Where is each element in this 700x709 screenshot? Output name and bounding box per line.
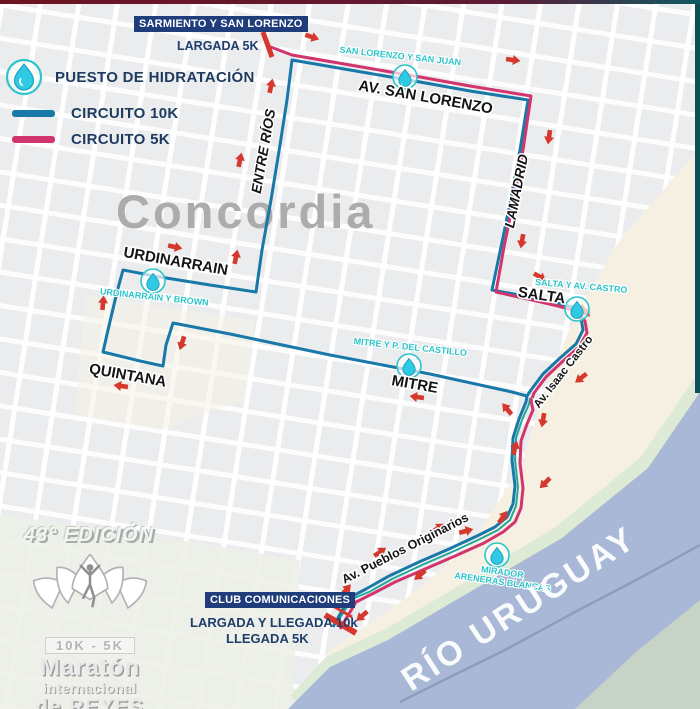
finish-line2: LLEGADA 5K bbox=[226, 631, 309, 646]
hydration-icon-urdinarrain bbox=[141, 269, 165, 293]
event-logo: 10K - 5K Maratón internacional de REYES … bbox=[6, 554, 174, 709]
legend-5k-label: CIRCUITO 5K bbox=[71, 131, 170, 148]
logo-distances: 10K - 5K bbox=[45, 637, 135, 654]
hydration-legend-icon bbox=[5, 58, 43, 96]
legend-hydration-label: PUESTO DE HIDRATACIÓN bbox=[55, 69, 255, 86]
street-label-lamadrid: LAMADRID bbox=[501, 153, 531, 229]
logo-title-2: internacional bbox=[6, 681, 174, 695]
hydration-label-san-lorenzo: SAN LORENZO Y SAN JUAN bbox=[339, 45, 462, 68]
legend: PUESTO DE HIDRATACIÓN CIRCUITO 10K CIRCU… bbox=[5, 58, 275, 157]
legend-5k-swatch bbox=[12, 136, 55, 143]
legend-hydration-row: PUESTO DE HIDRATACIÓN bbox=[5, 58, 275, 96]
legend-10k-swatch bbox=[12, 110, 55, 117]
logo-title-3: de REYES bbox=[6, 697, 174, 709]
right-border-strip bbox=[695, 0, 700, 393]
race-map: Concordia bbox=[0, 0, 700, 709]
legend-5k-row: CIRCUITO 5K bbox=[5, 131, 275, 148]
logo-title-1: Maratón bbox=[6, 656, 174, 680]
city-label: Concordia bbox=[116, 185, 375, 238]
hydration-icon-mirador bbox=[485, 543, 509, 567]
crown-runner-graphic bbox=[15, 554, 165, 634]
start-5k-gate bbox=[263, 32, 272, 57]
hydration-icon-salta bbox=[565, 297, 589, 321]
legend-10k-row: CIRCUITO 10K bbox=[5, 105, 275, 122]
top-gradient-bar bbox=[0, 0, 700, 4]
start-5k-badge: SARMIENTO Y SAN LORENZO bbox=[134, 16, 308, 32]
start-5k-label: LARGADA 5K bbox=[177, 39, 258, 53]
legend-10k-label: CIRCUITO 10K bbox=[71, 105, 179, 122]
edition-label: 43° EDICIÓN bbox=[24, 524, 154, 547]
finish-line1: LARGADA Y LLEGADA 10k bbox=[190, 615, 358, 630]
finish-badge: CLUB COMUNICACIONES bbox=[205, 592, 355, 608]
